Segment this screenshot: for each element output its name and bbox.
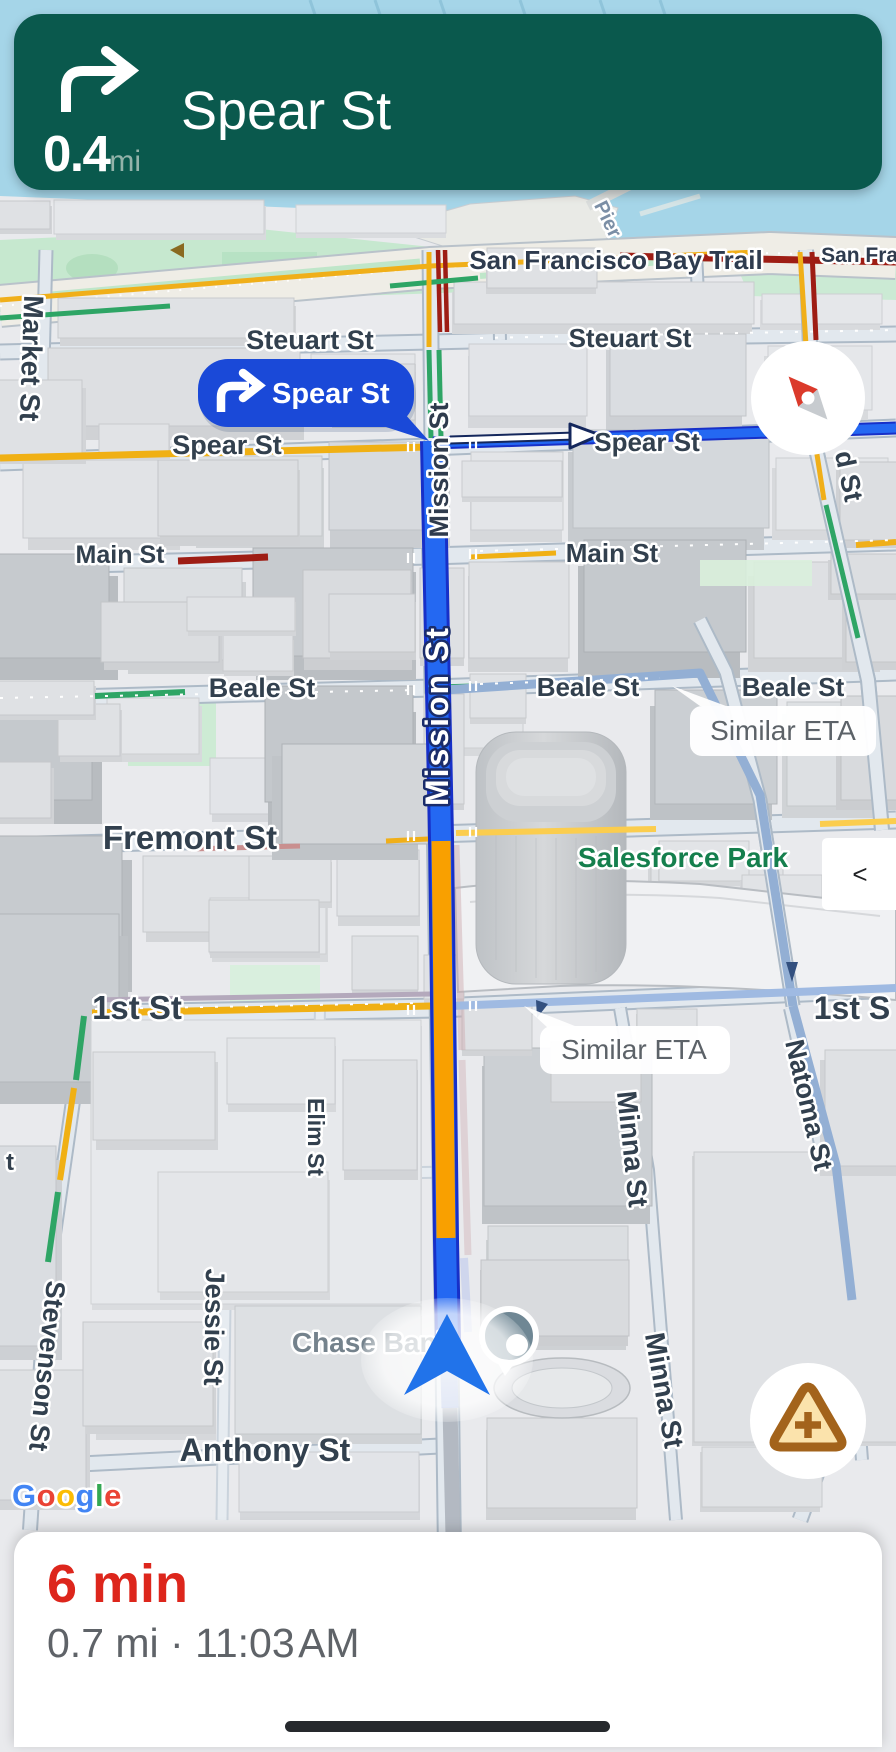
svg-text:Main St: Main St	[76, 541, 166, 569]
svg-text:Mission St: Mission St	[424, 402, 454, 537]
svg-text:Spear St: Spear St	[272, 378, 390, 410]
svg-text:t: t	[6, 1149, 14, 1176]
svg-text:1st St: 1st St	[92, 989, 182, 1026]
svg-text:Beale St: Beale St	[742, 672, 845, 702]
svg-text:Mission St: Mission St	[419, 626, 455, 806]
svg-text:Jessie St: Jessie St	[198, 1268, 230, 1386]
svg-text:Beale St: Beale St	[209, 673, 316, 703]
svg-text:Spear St: Spear St	[172, 430, 282, 460]
svg-text:San Fran: San Fran	[821, 244, 896, 267]
svg-text:Salesforce Park: Salesforce Park	[578, 842, 789, 873]
svg-text:Market St: Market St	[14, 295, 49, 422]
svg-text:1st S: 1st S	[814, 990, 890, 1026]
svg-text:Main St: Main St	[566, 538, 659, 568]
svg-text:Elim St: Elim St	[303, 1098, 329, 1176]
svg-text:Google: Google	[12, 1478, 122, 1513]
svg-text:<: <	[852, 859, 867, 889]
svg-text:Anthony St: Anthony St	[180, 1432, 351, 1468]
svg-text:Similar ETA: Similar ETA	[561, 1034, 707, 1065]
svg-text:Fremont St: Fremont St	[103, 819, 277, 856]
svg-text:Spear St: Spear St	[594, 427, 700, 457]
svg-text:Steuart St: Steuart St	[569, 323, 692, 353]
svg-text:Similar ETA: Similar ETA	[710, 715, 856, 746]
svg-text:San Francisco Bay Trail: San Francisco Bay Trail	[469, 245, 762, 275]
svg-text:Beale St: Beale St	[537, 672, 640, 702]
svg-text:Steuart St: Steuart St	[246, 325, 374, 355]
